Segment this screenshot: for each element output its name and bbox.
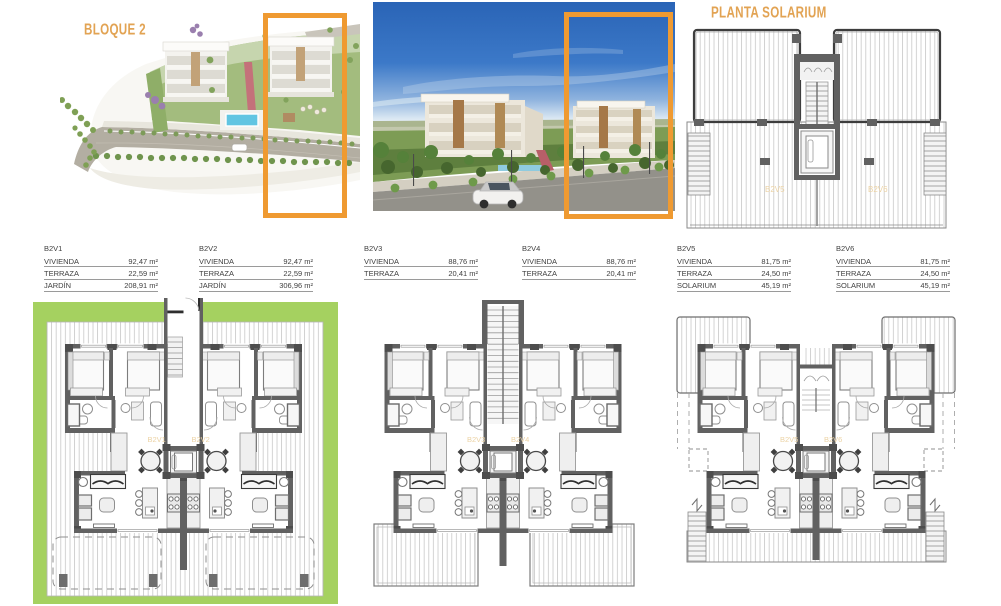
svg-text:B2V5: B2V5 <box>780 435 798 444</box>
svg-text:B2V5: B2V5 <box>765 185 785 194</box>
svg-text:B2V1: B2V1 <box>148 435 166 444</box>
svg-text:B2V4: B2V4 <box>511 435 529 444</box>
svg-text:B2V6: B2V6 <box>824 435 842 444</box>
svg-text:B2V3: B2V3 <box>467 435 485 444</box>
svg-text:B2V6: B2V6 <box>868 185 888 194</box>
svg-text:B2V2: B2V2 <box>192 435 210 444</box>
